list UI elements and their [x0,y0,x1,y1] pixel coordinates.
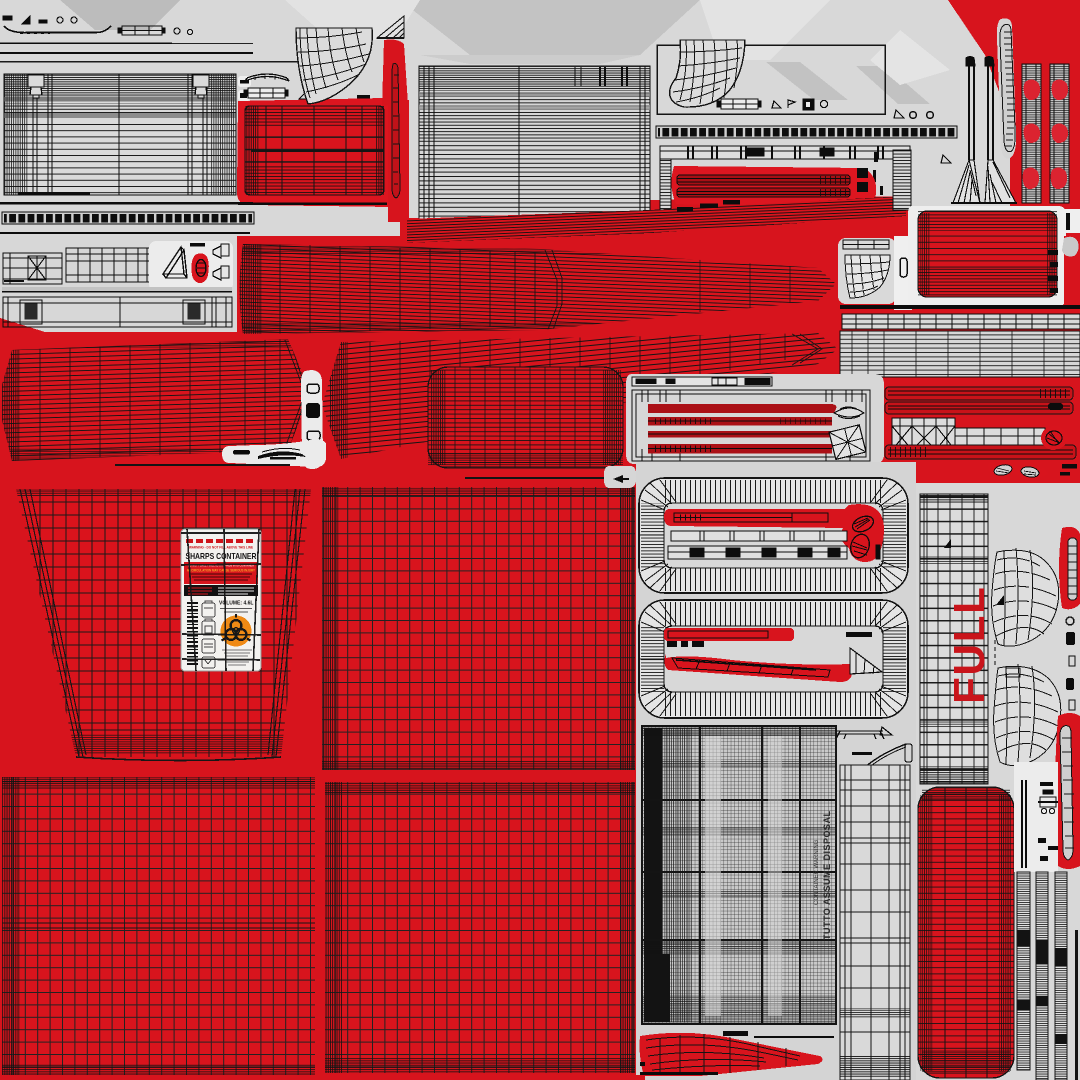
svg-text:RECIRCULATION MAY CAUSE SERIOU: RECIRCULATION MAY CAUSE SERIOUS INJURY [187,567,255,572]
svg-text:SHARPS CONTAINER: SHARPS CONTAINER [186,552,257,561]
svg-text:TUTTO ASSUME DISPOSAL: TUTTO ASSUME DISPOSAL [822,810,832,940]
svg-text:WARNING - DO NOT FILL ABOVE TH: WARNING - DO NOT FILL ABOVE THIS LINE [189,546,253,550]
svg-text:FULL: FULL [945,586,994,704]
svg-text:CONTAINER WARNING: CONTAINER WARNING [814,839,820,905]
svg-text:VOLUME: 4.6L: VOLUME: 4.6L [219,601,253,607]
